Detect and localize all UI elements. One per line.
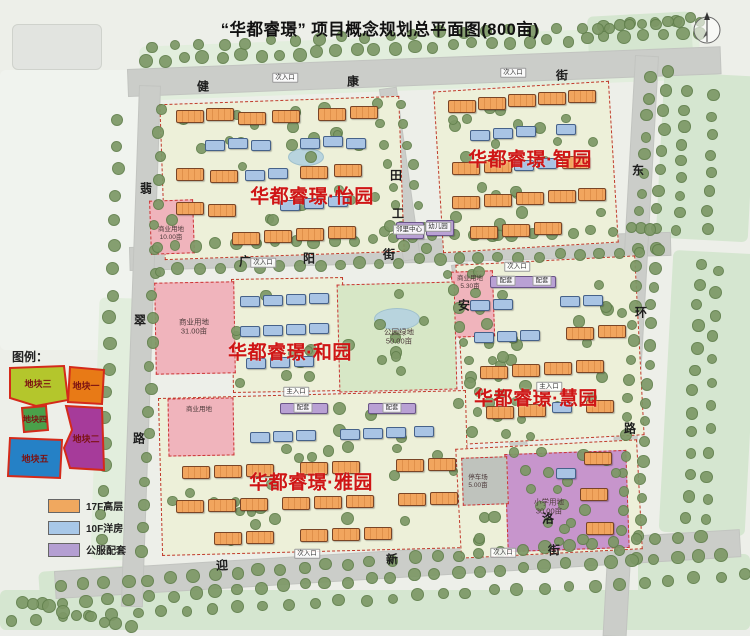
tree-icon	[133, 608, 144, 619]
tree-icon	[332, 594, 344, 606]
tree-icon	[555, 248, 565, 258]
facility-label-support: 配套	[294, 403, 313, 413]
land-use-name: 商业用地	[158, 226, 184, 234]
tree-icon	[286, 139, 298, 151]
street-name-yingxin: 迎	[216, 556, 229, 574]
tree-icon	[640, 416, 650, 426]
tree-icon	[624, 19, 635, 30]
building-10f-lowrise	[470, 300, 490, 311]
tree-icon	[477, 182, 487, 192]
district-label-yayuan: 华都睿璟·雅园	[249, 468, 373, 495]
tree-icon	[526, 432, 535, 441]
tree-icon	[671, 225, 681, 235]
tree-icon	[300, 578, 311, 589]
tree-icon	[137, 522, 148, 533]
tree-icon	[481, 318, 493, 330]
land-use-name: 商业用地	[457, 275, 483, 283]
building-10f-lowrise	[340, 429, 360, 440]
tree-icon	[366, 572, 378, 584]
building-17f-highrise	[398, 493, 426, 506]
building-10f-lowrise	[263, 295, 283, 306]
tree-icon	[706, 167, 717, 178]
tree-icon	[256, 50, 268, 62]
legend-parcel-diagram: 地块三 地块一 地块四 地块二 地块五	[2, 360, 117, 485]
tree-icon	[146, 42, 157, 53]
tree-icon	[269, 513, 281, 525]
building-10f-lowrise	[268, 168, 288, 179]
building-17f-highrise	[580, 488, 608, 501]
tree-icon	[396, 100, 405, 109]
tree-icon	[421, 243, 432, 254]
tree-icon	[641, 378, 653, 390]
tree-icon	[153, 199, 164, 210]
tree-icon	[714, 548, 728, 562]
building-17f-highrise	[502, 224, 530, 237]
tree-icon	[168, 591, 180, 603]
tree-icon	[155, 151, 166, 162]
tree-icon	[474, 533, 485, 544]
tree-icon	[573, 315, 586, 328]
tree-icon	[703, 494, 714, 505]
tree-icon	[315, 260, 327, 272]
building-10f-lowrise	[556, 468, 576, 479]
tree-icon	[675, 155, 686, 166]
legend-parcel-label: 地块五	[21, 453, 48, 464]
building-17f-highrise	[480, 366, 508, 379]
tree-icon	[125, 620, 138, 633]
entrance-label-secondary: 次入口	[294, 549, 320, 559]
tree-icon	[703, 447, 714, 458]
tree-icon	[231, 584, 242, 595]
tree-icon	[678, 120, 690, 132]
tree-icon	[644, 339, 657, 352]
building-10f-lowrise	[470, 130, 490, 141]
tree-icon	[707, 89, 720, 102]
tree-icon	[452, 566, 466, 580]
tree-icon	[107, 290, 119, 302]
tree-icon	[102, 310, 116, 324]
tree-icon	[577, 23, 588, 34]
tree-icon	[408, 568, 420, 580]
land-use-name: 小学用地	[534, 498, 564, 507]
legend-parcel-label: 地块三	[24, 378, 51, 389]
street-name-donghuan: 路	[624, 420, 636, 437]
tree-icon	[156, 104, 167, 115]
building-17f-highrise	[512, 364, 540, 377]
building-10f-lowrise	[273, 431, 293, 442]
tree-icon	[537, 559, 551, 573]
tree-icon	[692, 549, 705, 562]
building-10f-lowrise	[493, 299, 513, 310]
building-10f-lowrise	[286, 324, 306, 335]
building-17f-highrise	[396, 459, 424, 472]
tree-icon	[323, 445, 334, 456]
tree-icon	[604, 555, 617, 568]
tree-icon	[613, 578, 625, 590]
tree-icon	[657, 104, 669, 116]
tree-icon	[6, 615, 18, 627]
tree-icon	[454, 252, 465, 263]
building-17f-highrise	[182, 466, 210, 479]
legend-swatch-17f	[48, 499, 80, 513]
tree-icon	[361, 595, 373, 607]
tree-icon	[170, 40, 180, 50]
tree-icon	[109, 617, 121, 629]
land-use-label: 小学用地 30.00亩	[534, 498, 564, 517]
tree-icon	[662, 575, 674, 587]
tree-icon	[563, 36, 575, 48]
tree-icon	[391, 351, 401, 361]
tree-icon	[432, 550, 444, 562]
tree-icon	[534, 122, 546, 134]
tree-icon	[643, 93, 655, 105]
building-17f-highrise	[516, 192, 544, 205]
tree-icon	[351, 43, 364, 56]
building-10f-lowrise	[205, 140, 225, 151]
tree-icon	[658, 29, 669, 40]
tree-icon	[673, 16, 685, 28]
tree-icon	[363, 556, 374, 567]
tree-icon	[384, 572, 396, 584]
building-10f-lowrise	[309, 323, 329, 334]
legend-item-label: 10F洋房	[86, 520, 123, 535]
street-name-guangyang: 街	[383, 246, 395, 263]
street-name-guangyang: 广	[239, 253, 251, 270]
tree-icon	[122, 594, 134, 606]
tree-icon	[375, 119, 385, 129]
tree-icon	[232, 567, 245, 580]
tree-icon	[649, 282, 659, 292]
tree-icon	[155, 267, 165, 277]
tree-icon	[686, 448, 697, 459]
tree-icon	[122, 575, 136, 589]
tree-icon	[144, 428, 154, 438]
tree-icon	[509, 447, 520, 458]
building-17f-highrise	[544, 362, 572, 375]
tree-icon	[585, 225, 595, 235]
street-name-donghuan: 环	[635, 304, 647, 321]
tree-icon	[103, 337, 117, 351]
tree-icon	[394, 289, 404, 299]
tree-icon	[186, 569, 200, 583]
tree-icon	[645, 360, 655, 370]
land-use-label: 公园绿地 50.00亩	[384, 328, 414, 347]
building-17f-highrise	[318, 108, 346, 121]
tree-icon	[635, 514, 647, 526]
building-17f-highrise	[332, 528, 360, 541]
page-title: “华都睿璟” 项目概念规划总平面图(800亩)	[221, 16, 540, 40]
tree-icon	[342, 441, 354, 453]
tree-icon	[27, 598, 39, 610]
land-use-area: 5.00亩	[468, 482, 488, 490]
tree-icon	[675, 191, 685, 201]
street-name-jiankang: 康	[347, 72, 360, 89]
tree-icon	[691, 342, 703, 354]
tree-icon	[99, 617, 110, 628]
legend-item-17f: 17F高层	[48, 498, 123, 513]
street-name-feicui: 翡	[140, 180, 152, 197]
tree-icon	[568, 228, 579, 239]
building-17f-highrise	[176, 110, 204, 123]
building-17f-highrise	[208, 499, 236, 512]
tree-icon	[644, 223, 657, 236]
tree-icon	[692, 319, 704, 331]
building-17f-highrise	[232, 232, 260, 245]
tree-icon	[631, 533, 642, 544]
tree-icon	[194, 263, 207, 276]
tree-icon	[707, 378, 717, 388]
tree-icon	[408, 40, 422, 54]
facility-label-kindergarten: 幼儿园	[425, 222, 451, 232]
building-10f-lowrise	[309, 293, 329, 304]
building-17f-highrise	[264, 230, 292, 243]
tree-icon	[153, 174, 165, 186]
tree-icon	[494, 565, 506, 577]
tree-icon	[42, 599, 56, 613]
building-17f-highrise	[448, 100, 476, 113]
tree-icon	[516, 206, 528, 218]
building-17f-highrise	[478, 97, 506, 110]
tree-icon	[408, 159, 419, 170]
tree-icon	[652, 244, 664, 256]
tree-icon	[453, 551, 464, 562]
building-10f-lowrise	[251, 140, 271, 151]
tree-icon	[139, 477, 150, 488]
tree-icon	[235, 378, 245, 388]
master-plan-map: “华都睿璟” 项目概念规划总平面图(800亩) 华都睿璟·怡园 华都睿璟·智园 …	[0, 0, 750, 630]
facility-label-support: 配套	[383, 403, 402, 413]
street-name-jiankang: 健	[197, 77, 210, 94]
tree-icon	[97, 576, 110, 589]
street-name-feicui: 翠	[134, 312, 146, 329]
tree-icon	[379, 140, 389, 150]
tree-icon	[639, 436, 650, 447]
building-17f-highrise	[328, 226, 356, 239]
land-use-label: 商业用地 10.00亩	[158, 226, 184, 242]
tree-icon	[536, 447, 546, 457]
building-17f-highrise	[300, 166, 328, 179]
building-10f-lowrise	[296, 430, 316, 441]
tree-icon	[141, 575, 154, 588]
tree-icon	[135, 545, 147, 557]
building-17f-highrise	[548, 190, 576, 203]
tree-icon	[185, 488, 195, 498]
tree-icon	[277, 578, 290, 591]
tree-icon	[77, 577, 89, 589]
tree-icon	[649, 262, 662, 275]
entrance-label-secondary: 次入口	[504, 262, 530, 272]
tree-icon	[353, 256, 366, 269]
tree-icon	[619, 486, 630, 497]
tree-icon	[79, 595, 93, 609]
entrance-label-secondary: 次入口	[490, 548, 516, 558]
building-10f-lowrise	[560, 296, 580, 307]
tree-icon	[630, 260, 642, 272]
tree-icon	[488, 511, 501, 524]
tree-icon	[634, 473, 646, 485]
tree-icon	[98, 485, 109, 496]
tree-icon	[707, 330, 718, 341]
tree-icon	[662, 65, 674, 77]
tree-icon	[402, 141, 411, 150]
tree-icon	[281, 444, 291, 454]
tree-icon	[145, 383, 157, 395]
tree-icon	[672, 532, 684, 544]
tree-icon	[618, 505, 629, 516]
tree-icon	[231, 600, 244, 613]
street-name-yingxin: 新	[386, 550, 399, 568]
legend-parcel-label: 地块一	[72, 380, 99, 391]
legend-swatch-public	[48, 543, 80, 557]
land-use-label: 商业用地	[186, 406, 212, 414]
building-17f-highrise	[586, 522, 614, 535]
building-17f-highrise	[578, 188, 606, 201]
tree-icon	[716, 572, 727, 583]
entrance-label-secondary: 次入口	[250, 258, 276, 268]
tree-icon	[689, 365, 700, 376]
tree-icon	[190, 586, 204, 600]
tree-icon	[462, 114, 472, 124]
legend-swatch-10f	[48, 521, 80, 535]
green-block	[659, 250, 750, 536]
building-10f-lowrise	[250, 432, 270, 443]
building-10f-lowrise	[346, 138, 366, 149]
land-use-area: 5.30亩	[457, 283, 483, 291]
building-17f-highrise	[334, 164, 362, 177]
tree-icon	[464, 356, 474, 366]
tree-icon	[687, 571, 700, 584]
tree-icon	[319, 558, 332, 571]
tree-icon	[551, 23, 562, 34]
building-10f-lowrise	[493, 128, 513, 139]
tree-icon	[700, 471, 712, 483]
building-17f-highrise	[584, 452, 612, 465]
tree-icon	[637, 493, 647, 503]
tree-icon	[694, 279, 706, 291]
building-10f-lowrise	[583, 295, 603, 306]
building-17f-highrise	[300, 529, 328, 542]
building-17f-highrise	[566, 327, 594, 340]
street-name-guangyang: 阳	[303, 250, 315, 267]
building-10f-lowrise	[414, 426, 434, 437]
building-17f-highrise	[576, 360, 604, 373]
building-17f-highrise	[350, 106, 378, 119]
tree-icon	[108, 239, 121, 252]
street-name-middle: 安	[458, 297, 470, 314]
legend-item-label: 公服配套	[86, 542, 126, 557]
tree-icon	[438, 588, 449, 599]
building-10f-lowrise	[386, 427, 406, 438]
entrance-label-secondary: 次入口	[500, 68, 526, 78]
tree-icon	[520, 465, 531, 476]
tree-icon	[650, 19, 661, 30]
building-17f-highrise	[272, 110, 300, 123]
tree-icon	[474, 566, 486, 578]
tree-icon	[138, 499, 149, 510]
building-17f-highrise	[238, 112, 266, 125]
tree-icon	[592, 23, 604, 35]
land-use-name: 公园绿地	[384, 328, 414, 337]
tree-icon	[307, 452, 316, 461]
tree-icon	[182, 606, 192, 616]
tree-icon	[577, 534, 588, 545]
facility-label-neighborhood-center: 邻里中心	[393, 225, 425, 235]
tree-icon	[518, 562, 529, 573]
street-name-middle: 田	[390, 167, 402, 184]
land-use-name: 商业用地	[186, 406, 212, 414]
building-10f-lowrise	[323, 136, 343, 147]
tree-icon	[704, 185, 715, 196]
tree-icon	[644, 71, 657, 84]
tree-icon	[561, 114, 571, 124]
tree-icon	[333, 402, 346, 415]
tree-icon	[713, 266, 724, 277]
tree-icon	[389, 183, 398, 192]
facility-label-support: 配套	[533, 276, 552, 286]
building-10f-lowrise	[520, 330, 540, 341]
tree-icon	[517, 544, 529, 556]
tree-icon	[637, 455, 650, 468]
building-10f-lowrise	[556, 124, 576, 135]
building-10f-lowrise	[474, 332, 494, 343]
tree-icon	[560, 557, 571, 568]
tree-icon	[147, 336, 160, 349]
tree-icon	[377, 355, 387, 365]
tree-icon	[335, 260, 346, 271]
building-17f-highrise	[470, 226, 498, 239]
tree-icon	[281, 370, 292, 381]
street-name-donghuan: 东	[632, 162, 644, 179]
district-label-heyuan: 华都睿璟·和园	[228, 338, 352, 365]
tree-icon	[497, 351, 509, 363]
tree-icon	[111, 114, 123, 126]
tree-icon	[594, 280, 604, 290]
tree-icon	[257, 601, 267, 611]
tree-icon	[398, 240, 410, 252]
building-10f-lowrise	[286, 294, 306, 305]
building-17f-highrise	[508, 94, 536, 107]
tree-icon	[85, 611, 97, 623]
tree-icon	[640, 398, 651, 409]
building-17f-highrise	[282, 497, 310, 510]
tree-icon	[434, 253, 447, 266]
tree-icon	[367, 43, 380, 56]
building-17f-highrise	[210, 170, 238, 183]
green-block	[656, 72, 750, 243]
tree-icon	[453, 398, 464, 409]
tree-icon	[680, 512, 692, 524]
tree-icon	[392, 444, 402, 454]
building-17f-highrise	[176, 500, 204, 513]
tree-icon	[171, 262, 184, 275]
tree-icon	[428, 568, 440, 580]
building-10f-lowrise	[516, 126, 536, 137]
tree-icon	[584, 558, 597, 571]
tree-icon	[329, 44, 342, 57]
tree-icon	[207, 603, 218, 614]
tree-icon	[193, 39, 204, 50]
building-10f-lowrise	[245, 170, 265, 181]
tree-icon	[293, 48, 306, 61]
building-17f-highrise	[314, 496, 342, 509]
tree-icon	[626, 355, 636, 365]
building-10f-lowrise	[263, 325, 283, 336]
tree-icon	[686, 407, 698, 419]
tree-icon	[398, 119, 407, 128]
tree-icon	[109, 190, 121, 202]
legend-item-public: 公服配套	[48, 542, 126, 557]
tree-icon	[696, 259, 706, 269]
